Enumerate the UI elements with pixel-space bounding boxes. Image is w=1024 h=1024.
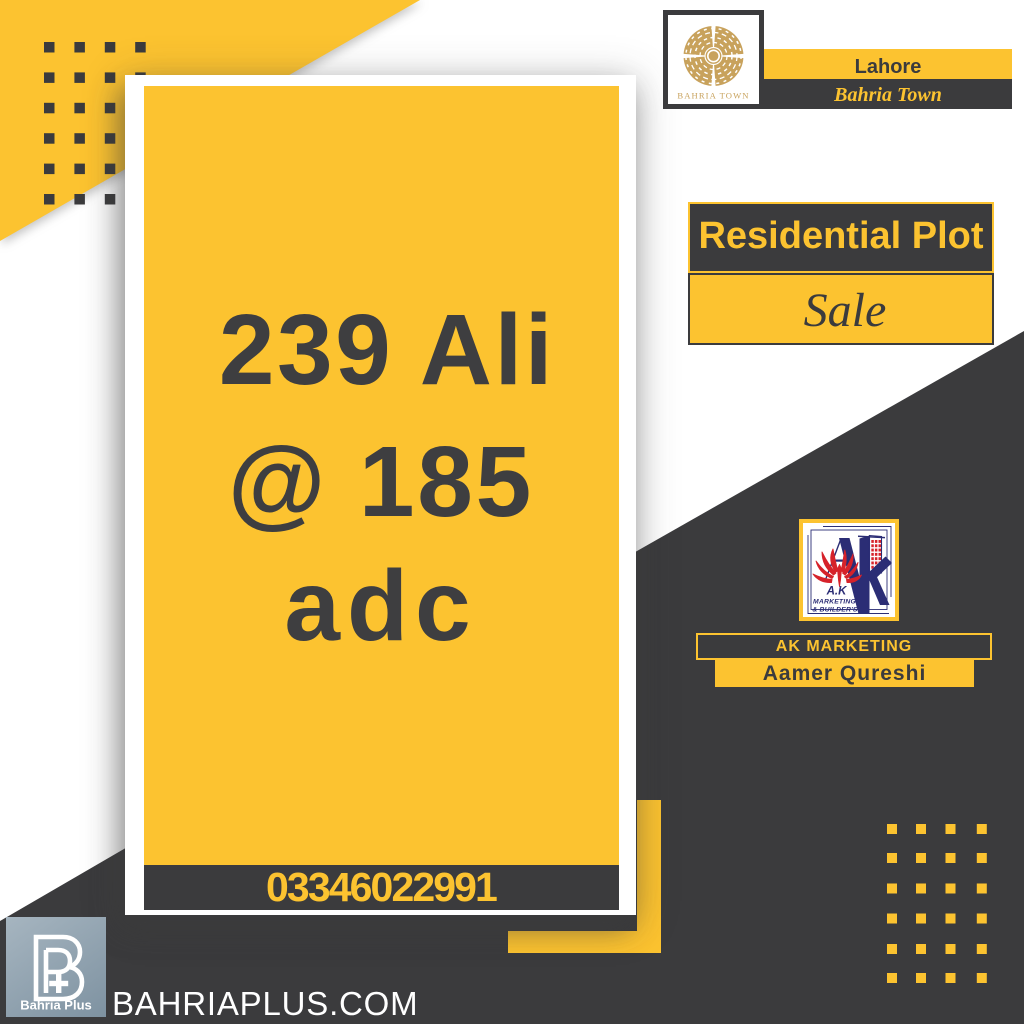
svg-text:Bahria Plus: Bahria Plus (20, 998, 92, 1013)
svg-text:MARKETING: MARKETING (813, 599, 856, 606)
svg-text:A.K: A.K (826, 586, 848, 598)
svg-text:& BUILDER'S: & BUILDER'S (812, 607, 858, 614)
svg-text:BAHRIA TOWN: BAHRIA TOWN (677, 91, 749, 101)
